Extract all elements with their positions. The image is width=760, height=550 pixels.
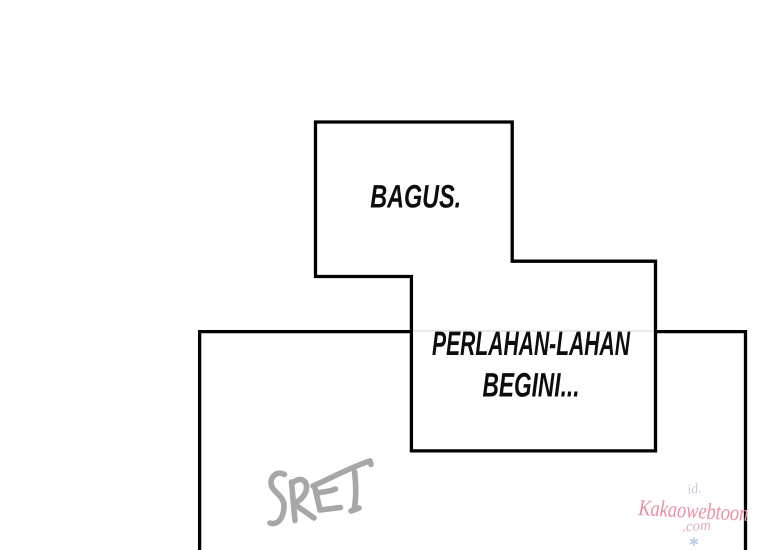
svg-text:id.: id. — [686, 481, 702, 498]
svg-text:BEGINI...: BEGINI... — [483, 367, 580, 405]
svg-text:BAGUS.: BAGUS. — [370, 179, 461, 215]
svg-text:PERLAHAN-LAHAN: PERLAHAN-LAHAN — [432, 325, 631, 363]
svg-text:.com: .com — [682, 518, 712, 536]
